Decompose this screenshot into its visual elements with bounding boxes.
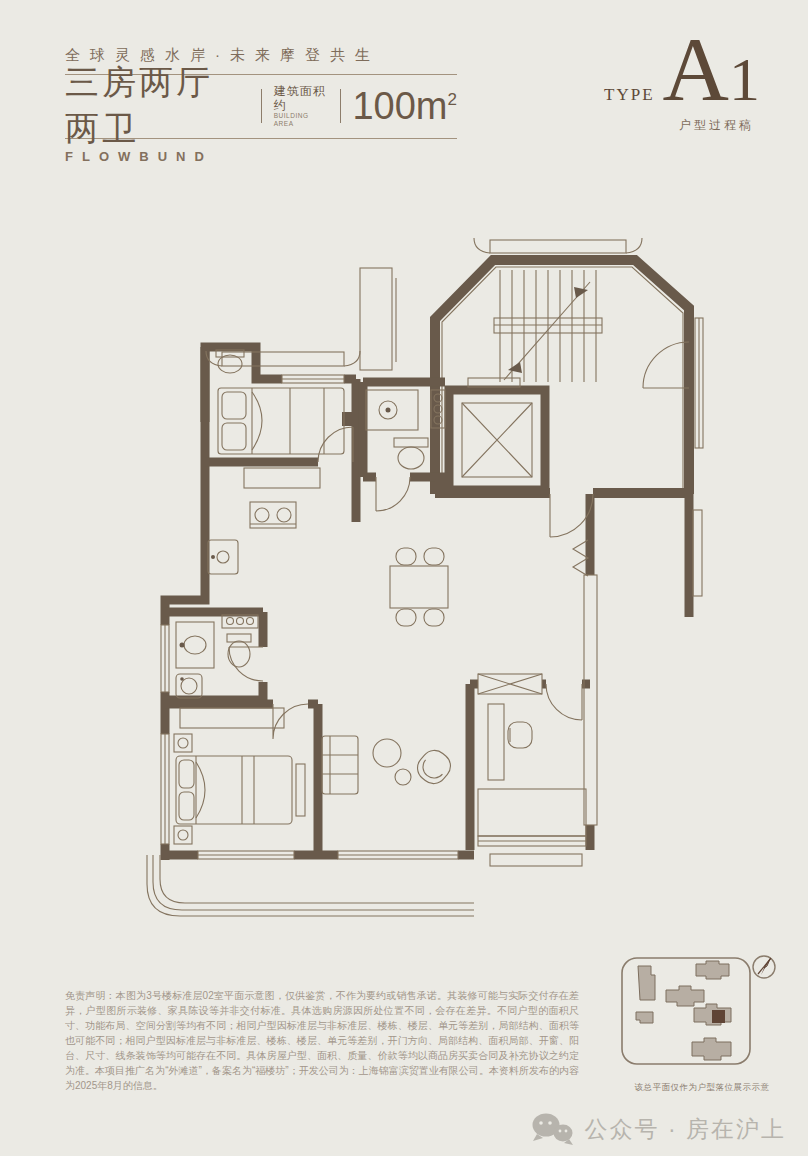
compass-icon: [753, 956, 775, 978]
bedroom-master: [174, 708, 305, 844]
area-label: 建筑面积约 BUILDING AREA: [274, 85, 328, 128]
area-sup: 2: [448, 90, 457, 109]
site-map: 该总平面仅作为户型落位展示示意: [612, 950, 792, 1094]
bathroom-top: [216, 350, 244, 373]
wechat-icon: [529, 1110, 575, 1148]
dining-area: [390, 548, 448, 626]
roof-railing: [490, 240, 626, 253]
stair-hall: [360, 238, 703, 617]
type-label: TYPE: [604, 85, 655, 105]
site-map-drawing: [612, 950, 792, 1074]
building-block: [666, 986, 704, 1006]
type-letter: A: [663, 28, 729, 111]
elevator: [449, 378, 545, 490]
building-block: [636, 1012, 653, 1023]
bay-window: [478, 789, 586, 866]
bathroom-main: [176, 615, 258, 698]
building-block: [692, 1038, 731, 1060]
watermark: 公众号 · 房在沪上: [529, 1110, 786, 1148]
kitchen: [208, 468, 320, 574]
vertical-divider: [261, 89, 262, 123]
upper-railing: [206, 351, 360, 366]
fire-stair: [360, 268, 396, 370]
vertical-divider: [340, 89, 341, 123]
type-digit: 1: [729, 52, 760, 108]
disclaimer-text: 免责声明：本图为3号楼标准层02室平面示意图，仅供鉴赏，不作为要约或销售承诺。其…: [65, 988, 579, 1093]
poster-page: 全球灵感水岸·未来摩登共生 三房两厅两卫 建筑面积约 BUILDING AREA…: [0, 0, 808, 1156]
highlighted-building: [712, 1010, 725, 1023]
type-row: TYPE A 1: [604, 28, 760, 111]
floor-plan: [138, 222, 708, 932]
balcony: [147, 855, 474, 916]
area-label-en: BUILDING AREA: [274, 112, 328, 127]
brand-name: FLOWBUND: [65, 149, 457, 164]
watermark-text: 公众号 · 房在沪上: [585, 1114, 786, 1145]
header-right: TYPE A 1 户型过程稿: [604, 28, 760, 134]
site-map-caption: 该总平面仅作为户型落位展示示意: [612, 1082, 792, 1094]
title-row: 三房两厅两卫 建筑面积约 BUILDING AREA 100m2: [65, 83, 457, 129]
living-room: [322, 736, 456, 794]
building-block: [638, 966, 655, 1000]
study-room: [488, 704, 532, 780]
building-block: [696, 961, 729, 979]
layout-title: 三房两厅两卫: [65, 60, 249, 152]
area-value: 100m2: [352, 85, 457, 128]
type-note: 户型过程稿: [604, 117, 760, 134]
header-left: 全球灵感水岸·未来摩登共生 三房两厅两卫 建筑面积约 BUILDING AREA…: [65, 46, 457, 164]
bedroom-second: [218, 388, 344, 454]
area-label-cn: 建筑面积约: [274, 85, 328, 113]
